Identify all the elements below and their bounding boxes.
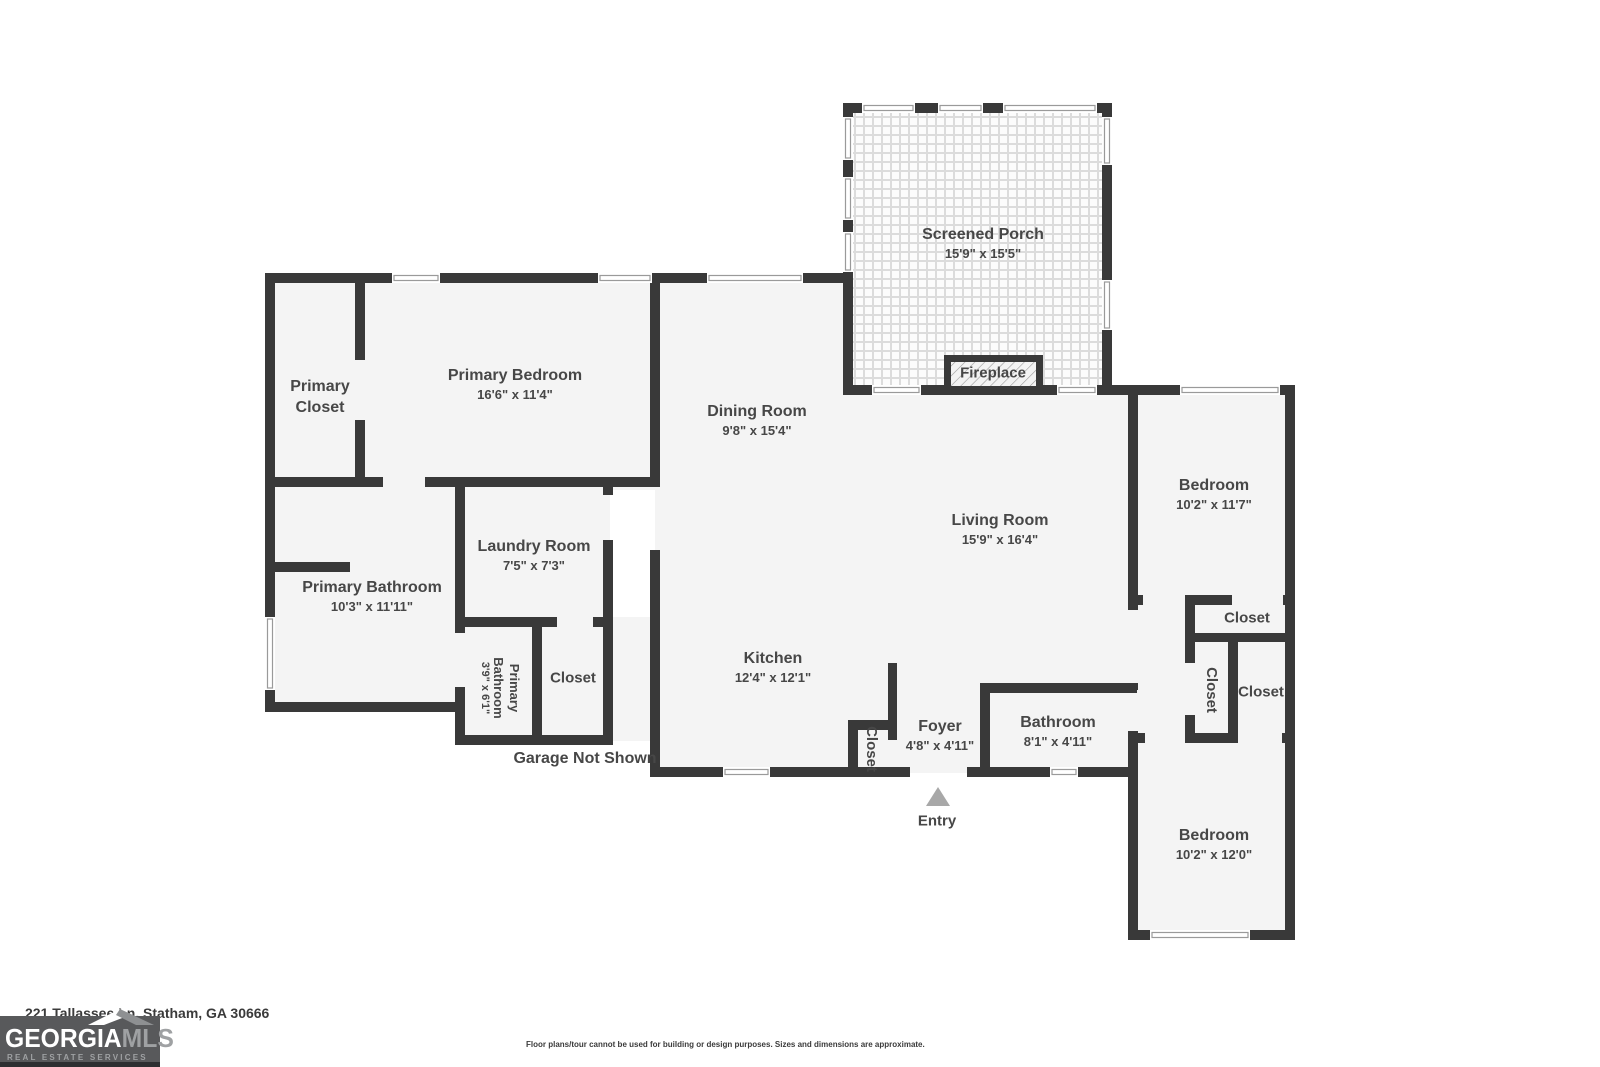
porch-window (1057, 385, 1097, 395)
porch-window (1102, 117, 1112, 165)
room-label-kitchen: Kitchen 12'4" x 12'1" (735, 649, 811, 687)
porch-window (872, 385, 921, 395)
floorplan-page: Screened Porch 15'9" x 15'5" Primary Clo… (0, 0, 1600, 1067)
disclaimer-text: Floor plans/tour cannot be used for buil… (526, 1040, 925, 1049)
fireplace-label: Fireplace (960, 363, 1026, 383)
logo-tagline: REAL ESTATE SERVICES (7, 1053, 148, 1062)
room-label-primary-closet: Primary Closet (274, 377, 366, 419)
window (1150, 930, 1250, 940)
window (707, 273, 803, 283)
entry-arrow-icon (926, 787, 950, 806)
room-label-laundry-room: Laundry Room 7'5" x 7'3" (478, 537, 591, 575)
porch-window (1003, 103, 1097, 113)
logo-wordmark: GEORGIAMLS (5, 1023, 174, 1054)
georgia-mls-logo: GEORGIAMLS REAL ESTATE SERVICES (0, 1016, 160, 1067)
floorplan-drawing (0, 0, 1600, 1067)
room-label-dining-room: Dining Room 9'8" x 15'4" (707, 402, 807, 440)
porch-window (843, 177, 853, 220)
room-label-bedroom-upper: Bedroom 10'2" x 11'7" (1176, 476, 1252, 514)
window (1050, 767, 1078, 777)
window (1180, 385, 1280, 395)
window (265, 617, 275, 690)
window (392, 273, 440, 283)
room-label-living-room: Living Room 15'9" x 16'4" (952, 511, 1049, 549)
room-label-closet-by-laundry: Closet (550, 668, 596, 688)
room-label-primary-bedroom: Primary Bedroom 16'6" x 11'4" (448, 366, 582, 404)
room-label-closet-mid-right: Closet (1238, 682, 1284, 702)
porch-window (1102, 280, 1112, 330)
room-label-closet-mid-vertical: Closet (1201, 667, 1221, 713)
porch-window (843, 232, 853, 272)
window (723, 767, 770, 777)
porch-window (938, 103, 983, 113)
room-label-primary-bathroom: Primary Bathroom 10'3" x 11'11" (302, 578, 442, 616)
room-label-closet-foyer: Closet (861, 726, 881, 772)
logo-strip (0, 1062, 160, 1067)
window (598, 273, 652, 283)
room-label-primary-bathroom-wc: Primary Bathroom 3'9" x 6'1" (478, 653, 522, 723)
porch-window (843, 117, 853, 160)
garage-note: Garage Not Shown (513, 750, 656, 768)
room-label-bathroom: Bathroom 8'1" x 4'11" (1020, 713, 1096, 751)
room-label-screened-porch: Screened Porch 15'9" x 15'5" (922, 225, 1044, 263)
room-label-foyer: Foyer 4'8" x 4'11" (906, 717, 974, 755)
room-label-closet-top-right: Closet (1224, 608, 1270, 628)
room-label-bedroom-lower: Bedroom 10'2" x 12'0" (1176, 826, 1252, 864)
entry-label: Entry (918, 811, 956, 831)
porch-window (862, 103, 915, 113)
